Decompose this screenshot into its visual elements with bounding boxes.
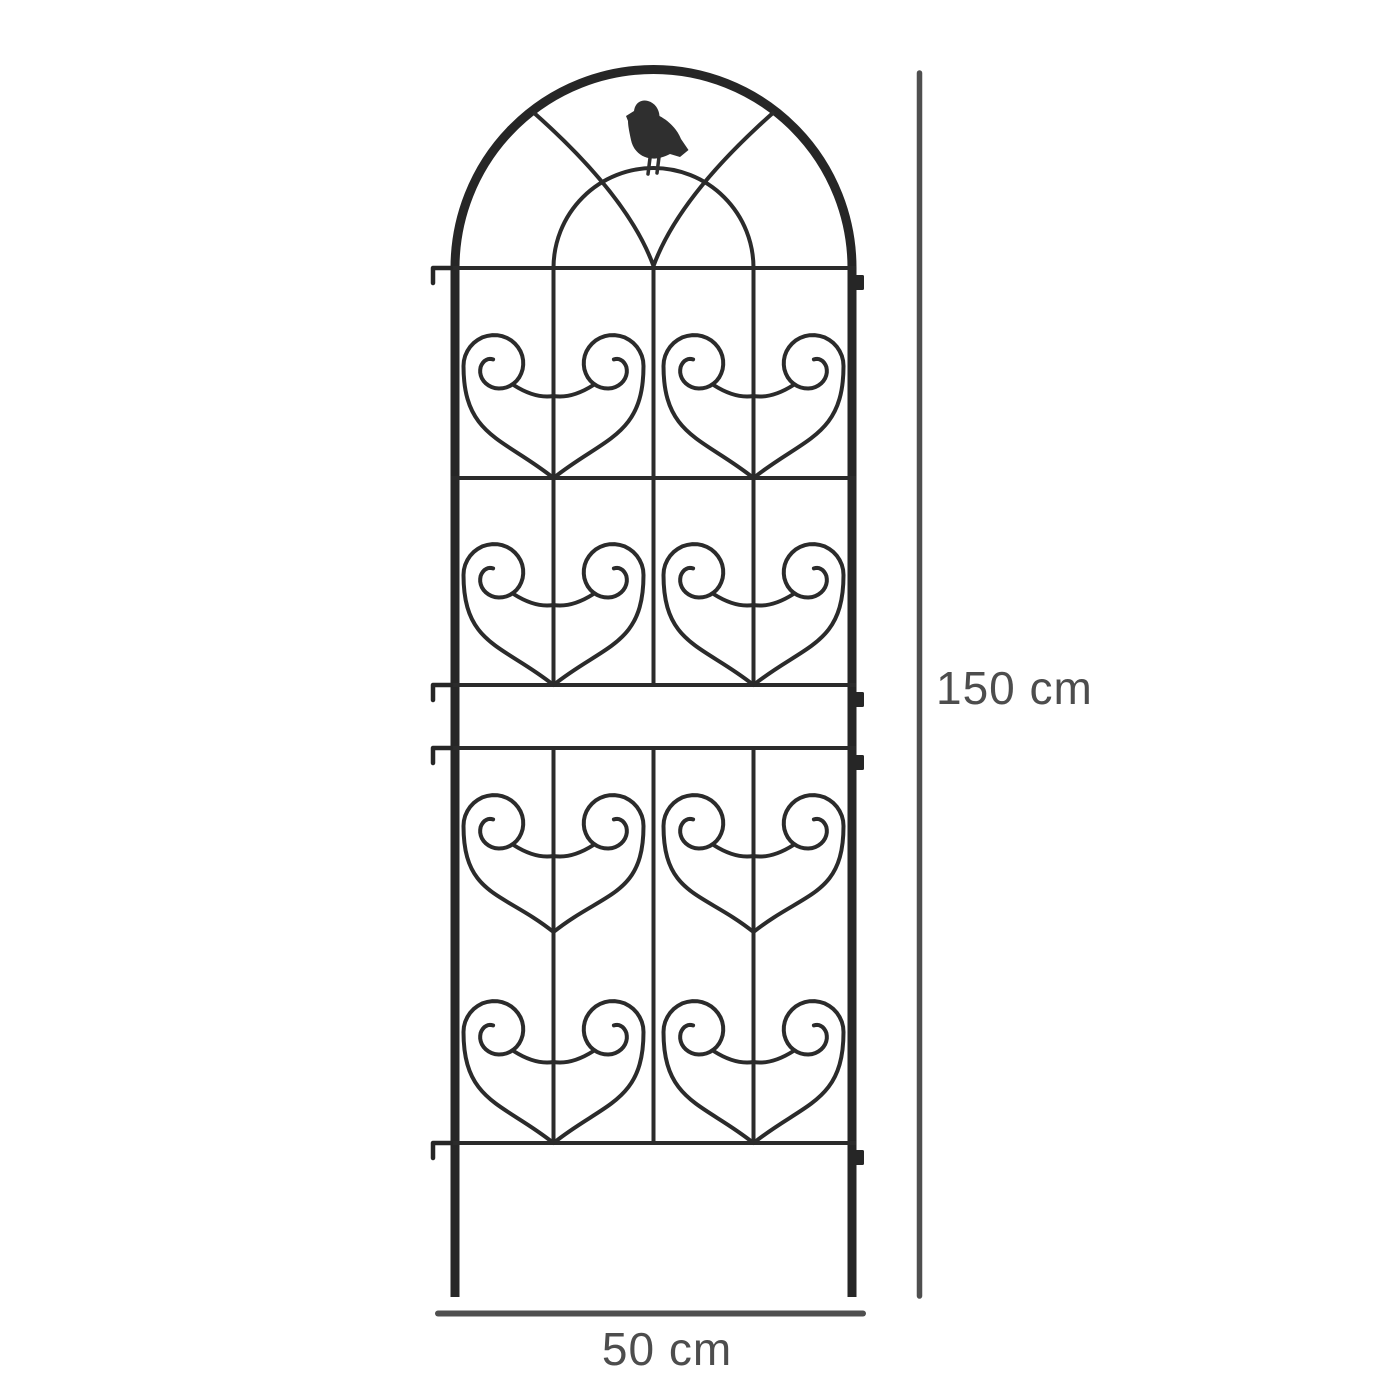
bird-silhouette — [626, 100, 689, 174]
mount-hook — [433, 1143, 451, 1158]
mount-tab — [855, 692, 864, 707]
mount-hook — [433, 748, 451, 763]
arch-inner-semicircle — [554, 168, 754, 268]
mount-hook — [433, 685, 451, 700]
width-dimension-label: 50 cm — [602, 1322, 732, 1376]
height-dimension-label: 150 cm — [936, 661, 1093, 715]
mounting-hooks — [433, 268, 451, 1158]
dimension-lines — [438, 73, 920, 1314]
grid-bars — [451, 268, 856, 1143]
mount-tab — [855, 755, 864, 770]
mount-tab — [855, 1150, 864, 1165]
bird-body — [626, 100, 689, 158]
mount-hook — [433, 268, 451, 283]
bird-legs — [648, 157, 659, 174]
trellis-diagram — [0, 0, 1400, 1400]
product-dimension-diagram: 150 cm 50 cm — [0, 0, 1400, 1400]
mount-tab — [855, 275, 864, 290]
